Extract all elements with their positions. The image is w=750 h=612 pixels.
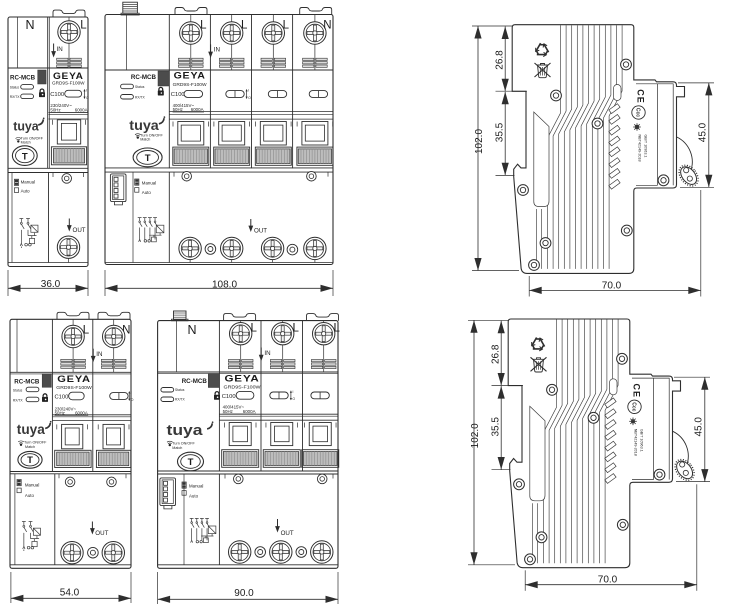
svg-text:L: L	[250, 322, 257, 334]
svg-text:50Hz: 50Hz	[50, 107, 60, 112]
svg-text:N: N	[323, 19, 331, 31]
svg-text:GEYA: GEYA	[57, 374, 91, 384]
svg-text:RC-MCB: RC-MCB	[14, 379, 40, 386]
svg-text:36.0: 36.0	[41, 279, 61, 290]
svg-text:IN: IN	[264, 350, 270, 357]
svg-text:108.0: 108.0	[212, 279, 237, 290]
svg-text:GEYA: GEYA	[53, 71, 84, 81]
svg-text:Status: Status	[175, 388, 185, 392]
svg-text:Status: Status	[10, 85, 20, 89]
svg-text:T: T	[22, 151, 28, 162]
svg-text:GEYA: GEYA	[174, 71, 206, 81]
svg-text:RC-MCB: RC-MCB	[10, 75, 36, 82]
svg-text:Auto: Auto	[21, 189, 31, 194]
svg-text:GEYA: GEYA	[225, 374, 260, 384]
svg-text:GRD9S-F100W: GRD9S-F100W	[52, 80, 86, 85]
svg-text:RX/TX: RX/TX	[10, 95, 21, 99]
svg-text:OUT: OUT	[254, 227, 267, 234]
svg-text:tuya: tuya	[129, 117, 159, 133]
svg-text:L: L	[292, 322, 299, 334]
svg-text:tuya: tuya	[167, 423, 204, 439]
svg-text:IN: IN	[57, 46, 63, 53]
svg-text:C100: C100	[222, 394, 236, 400]
svg-text:OUT: OUT	[281, 530, 294, 537]
svg-text:RC-MCB: RC-MCB	[131, 74, 157, 81]
svg-text:L: L	[241, 19, 248, 31]
svg-text:90.0: 90.0	[234, 588, 254, 599]
svg-text:Manual: Manual	[142, 181, 156, 186]
svg-text:tuya: tuya	[17, 422, 45, 437]
svg-text:Status: Status	[135, 85, 145, 89]
svg-text:N: N	[187, 323, 196, 337]
svg-text:RC-MCB: RC-MCB	[182, 378, 208, 385]
svg-text:6000A: 6000A	[243, 409, 256, 414]
svg-text:RX/TX: RX/TX	[175, 398, 186, 402]
svg-text:6000A: 6000A	[75, 107, 88, 112]
svg-text:L: L	[80, 20, 87, 32]
svg-text:L: L	[283, 19, 290, 31]
svg-text:Auto: Auto	[142, 190, 152, 195]
svg-text:GRD9S-F100W: GRD9S-F100W	[224, 385, 262, 390]
svg-text:tuya: tuya	[13, 120, 40, 134]
svg-text:RX/TX: RX/TX	[13, 399, 24, 403]
svg-text:IN: IN	[214, 47, 220, 54]
svg-text:Match: Match	[21, 140, 31, 144]
svg-text:Auto: Auto	[25, 493, 35, 498]
svg-text:GRD9S-F100W: GRD9S-F100W	[173, 82, 208, 87]
svg-text:OUT: OUT	[95, 530, 108, 537]
svg-text:C100: C100	[50, 92, 64, 98]
svg-text:L: L	[333, 322, 340, 334]
svg-text:T: T	[188, 457, 194, 468]
svg-text:N: N	[25, 18, 34, 32]
svg-text:OUT: OUT	[73, 227, 86, 234]
svg-text:Match: Match	[172, 446, 182, 450]
svg-text:Match: Match	[25, 445, 35, 449]
svg-text:Manual: Manual	[25, 482, 39, 487]
svg-text:IN: IN	[96, 351, 102, 358]
svg-text:RX/TX: RX/TX	[135, 95, 146, 99]
svg-text:Manual: Manual	[189, 484, 203, 489]
svg-text:Status: Status	[13, 388, 23, 392]
svg-text:Match: Match	[140, 137, 150, 141]
svg-text:T: T	[27, 455, 33, 466]
svg-text:L: L	[200, 19, 207, 31]
svg-text:50Hz: 50Hz	[223, 409, 233, 414]
svg-text:C100: C100	[55, 395, 69, 401]
svg-text:54.0: 54.0	[60, 587, 80, 598]
svg-text:Manual: Manual	[21, 179, 35, 184]
svg-text:GRD9S-F100W: GRD9S-F100W	[56, 385, 93, 390]
svg-text:Auto: Auto	[189, 494, 199, 499]
svg-text:T: T	[145, 153, 151, 164]
svg-text:C100: C100	[171, 92, 185, 98]
